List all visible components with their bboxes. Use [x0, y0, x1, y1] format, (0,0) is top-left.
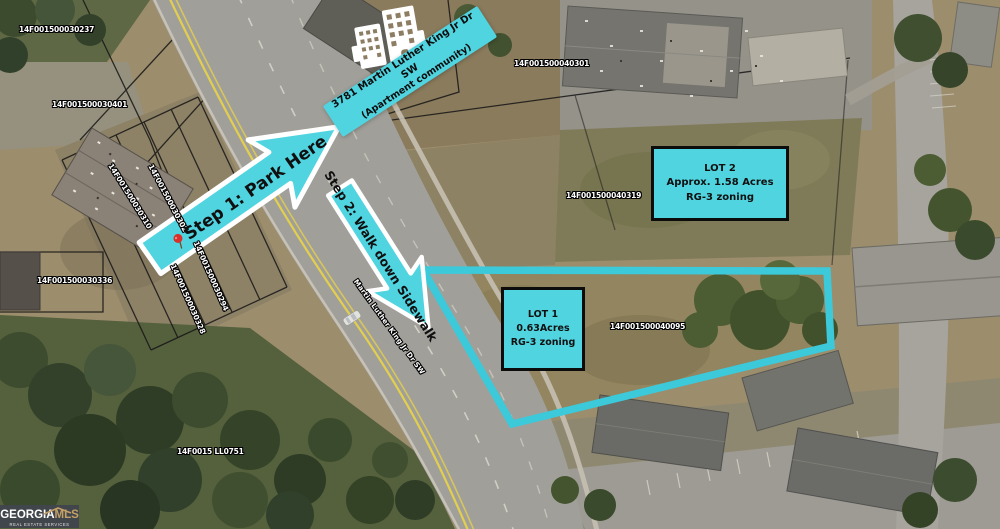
parcel-label: 14F001500030401: [52, 100, 127, 109]
lot2-area: Approx. 1.58 Acres: [666, 176, 773, 191]
lot1-area: 0.63Acres: [516, 322, 569, 336]
aerial-imagery: [0, 0, 1000, 529]
burned-building: [562, 6, 742, 98]
parcel-label: 14F0015 LL0751: [177, 447, 244, 456]
georgia-mls-logo: GEORGIAMLS REAL ESTATE SERVICES: [0, 505, 79, 528]
parcel-label: 14F001500040301: [514, 59, 589, 68]
aerial-map: 14F001500030237 14F001500030401 14F00150…: [0, 0, 1000, 529]
parcel-label: 14F001500040319: [566, 191, 641, 200]
lot2-zoning: RG-3 zoning: [686, 191, 754, 206]
lot2-title: LOT 2: [704, 162, 736, 177]
parcel-label: 14F001500030237: [19, 25, 94, 34]
lot1-title: LOT 1: [528, 308, 558, 322]
parcel-label: 14F001500030336: [37, 276, 112, 285]
parcel-label: 14F001500040095: [610, 322, 685, 331]
lot2-info-box: LOT 2 Approx. 1.58 Acres RG-3 zoning: [651, 146, 789, 221]
logo-tagline: REAL ESTATE SERVICES: [10, 522, 70, 527]
logo-roof-icon: [42, 506, 74, 515]
lot1-zoning: RG-3 zoning: [511, 336, 576, 350]
lot1-info-box: LOT 1 0.63Acres RG-3 zoning: [501, 287, 585, 371]
